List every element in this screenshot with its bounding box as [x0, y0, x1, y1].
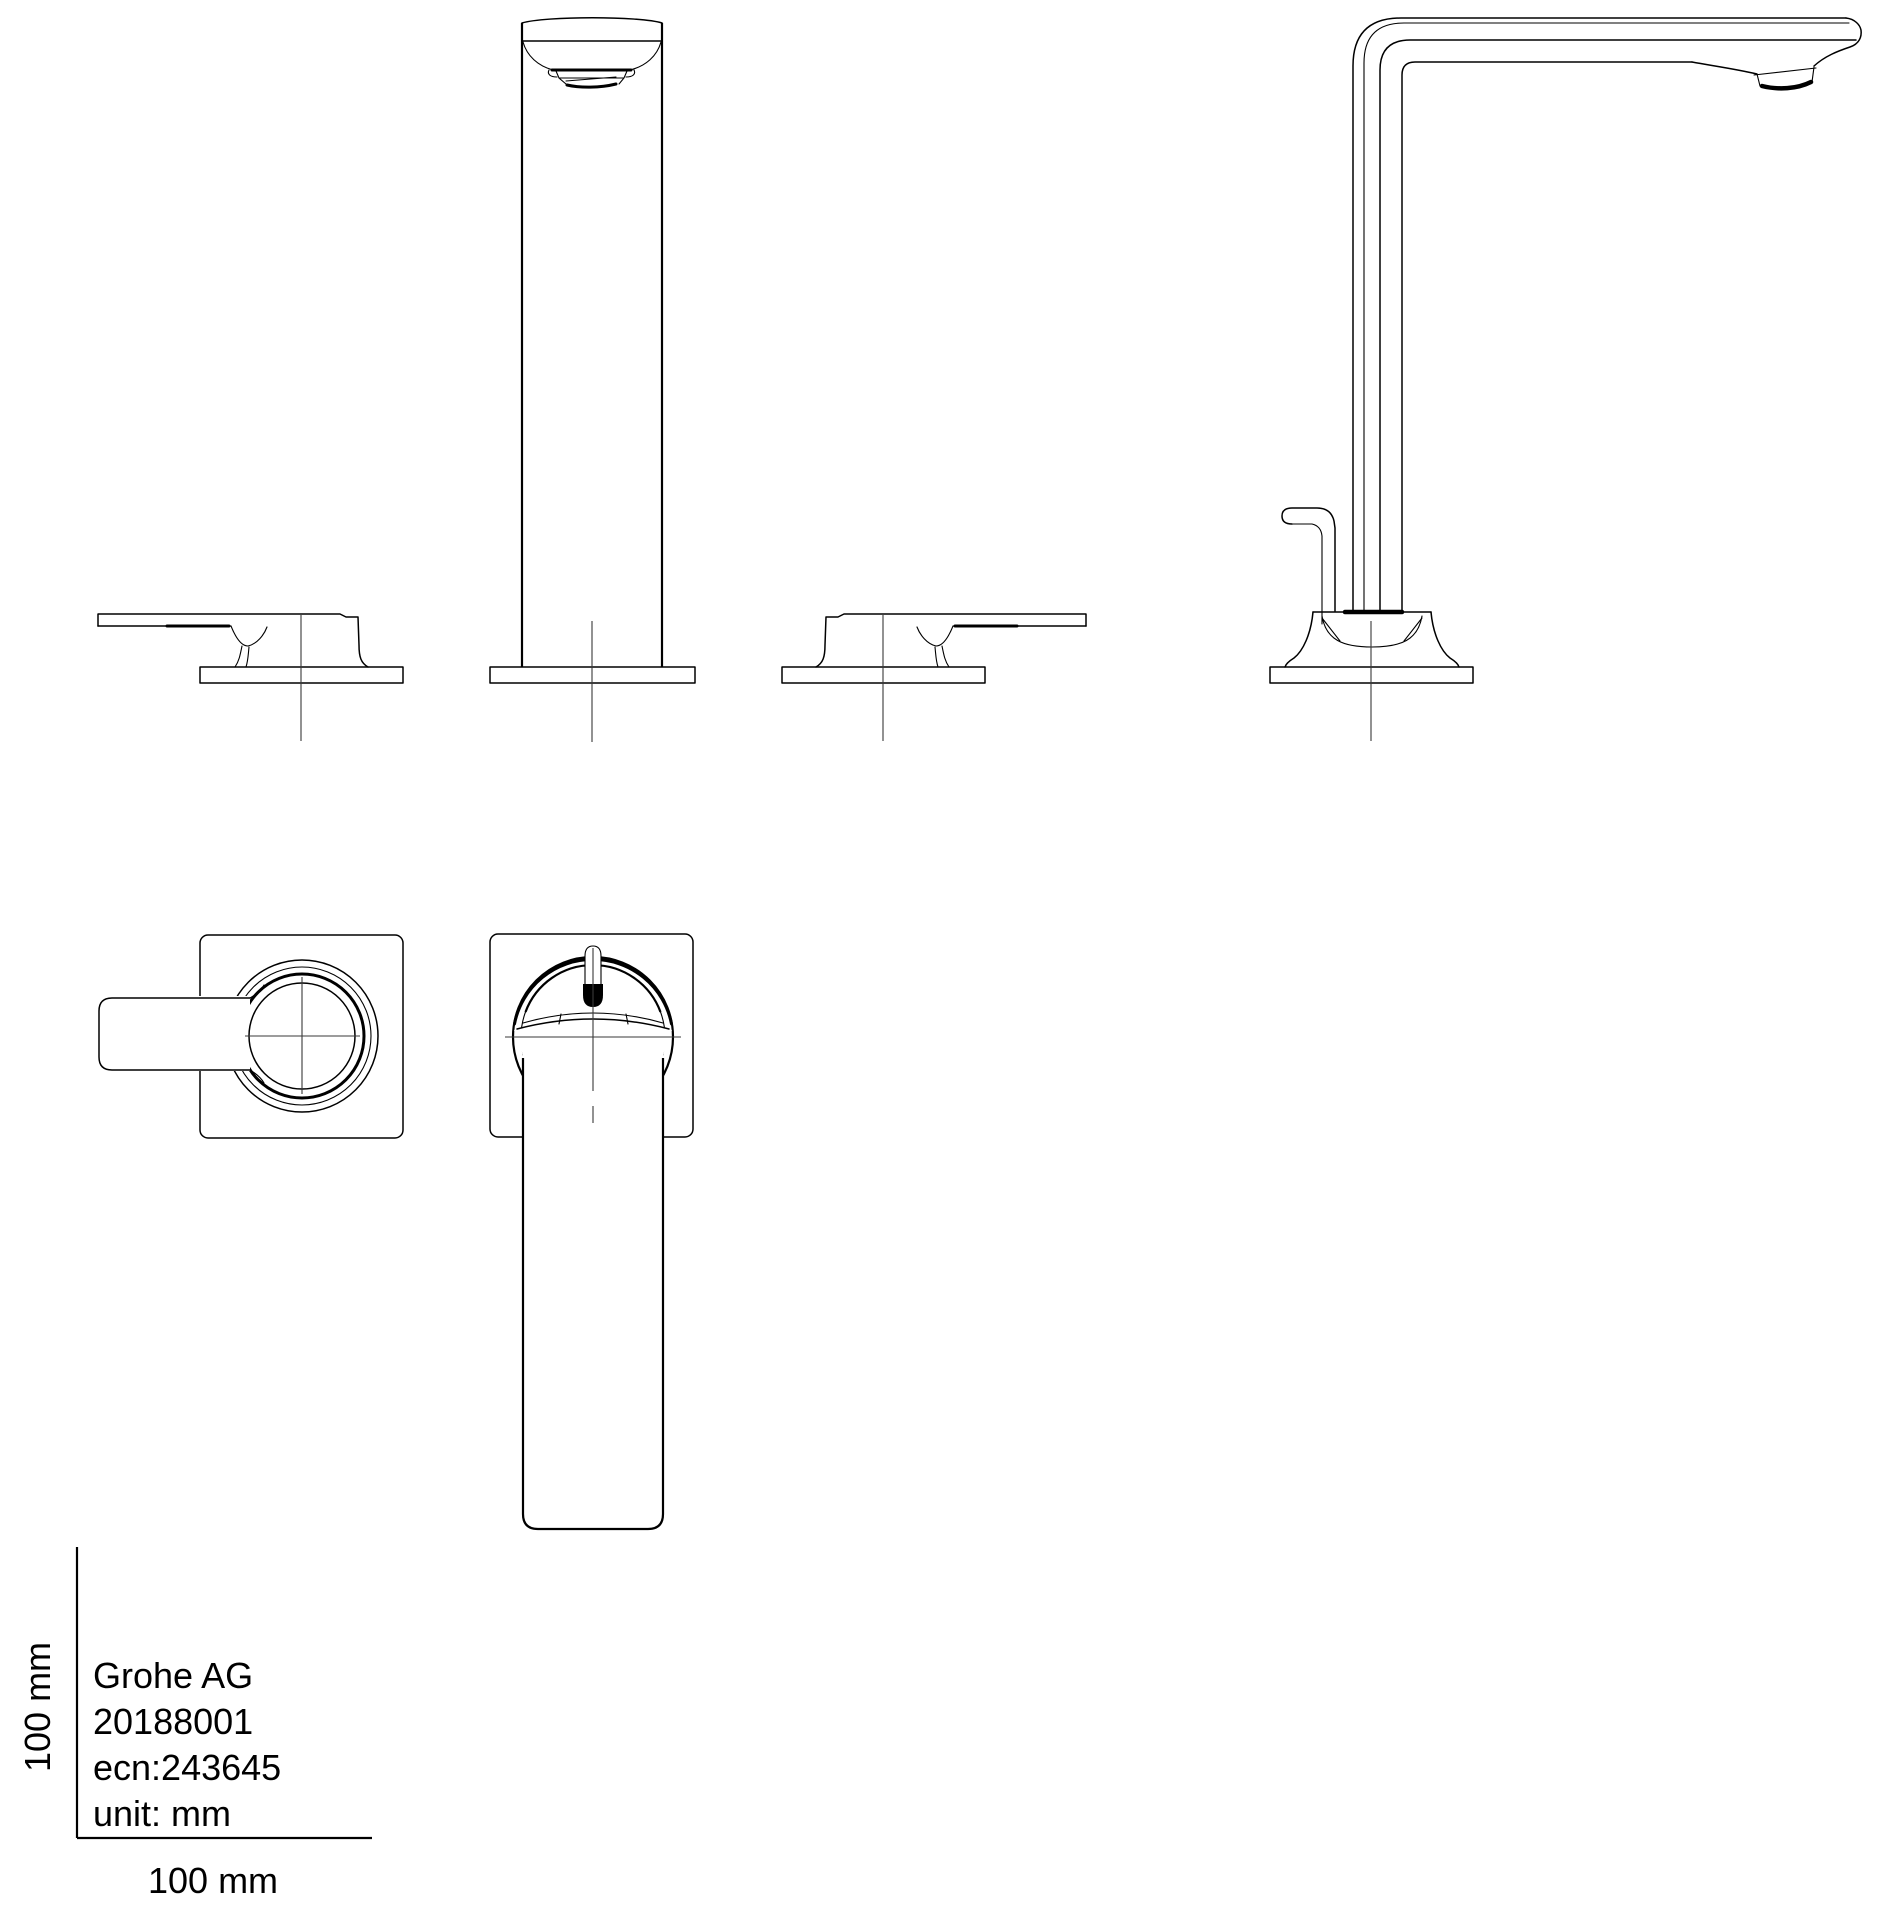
lever-notch [917, 626, 953, 646]
aerator-bottom-band [567, 84, 616, 87]
dome-bowl-sides [1322, 618, 1422, 641]
aerator-bottom-band [1762, 82, 1811, 88]
dome-right-side [1431, 612, 1459, 667]
left-handle-front-view [97, 935, 403, 1138]
spout-body-fill [514, 1018, 672, 1529]
lever-neck-left [935, 647, 938, 667]
title-block-part-number: 20188001 [93, 1701, 253, 1742]
aerator-body [556, 71, 627, 84]
title-block: Grohe AG 20188001 ecn:243645 unit: mm [93, 1655, 281, 1834]
lever-neck-right [246, 647, 249, 667]
column-top-cap [522, 18, 662, 23]
right-handle-side-view [782, 614, 1086, 741]
spout-nose [1814, 18, 1861, 66]
dome-bowl [1322, 616, 1422, 647]
lever-neck-left [235, 646, 242, 667]
spout-belly [1692, 62, 1757, 74]
dome-left-side [1285, 612, 1313, 667]
lever-notch [231, 626, 267, 646]
title-block-ecn: ecn:243645 [93, 1747, 281, 1788]
spout-column-front-view [490, 18, 695, 742]
funnel-left [523, 42, 553, 70]
spout-contour-3 [1380, 40, 1856, 612]
lever-neck-right [942, 646, 949, 667]
horizontal-scale-label: 100 mm [148, 1860, 278, 1901]
vertical-scale-label: 100 mm [17, 1642, 58, 1772]
spout-contour-inner [1402, 62, 1692, 612]
title-block-unit: unit: mm [93, 1793, 231, 1834]
spout-front-view [490, 934, 693, 1529]
spout-contour-2 [1364, 23, 1849, 612]
technical-drawing-canvas: 100 mm 100 mm Grohe AG 20188001 ecn:2436… [0, 0, 1883, 1920]
funnel-right [630, 42, 661, 70]
spout-contour-outer [1353, 18, 1846, 612]
lever-outline [98, 614, 368, 667]
faucet-side-view [1270, 18, 1861, 741]
pull-rod-hook-inner [1292, 524, 1322, 624]
title-block-company: Grohe AG [93, 1655, 253, 1696]
left-handle-side-view [98, 614, 403, 741]
lever-fill [97, 996, 250, 1071]
lever-outline [816, 614, 1086, 667]
